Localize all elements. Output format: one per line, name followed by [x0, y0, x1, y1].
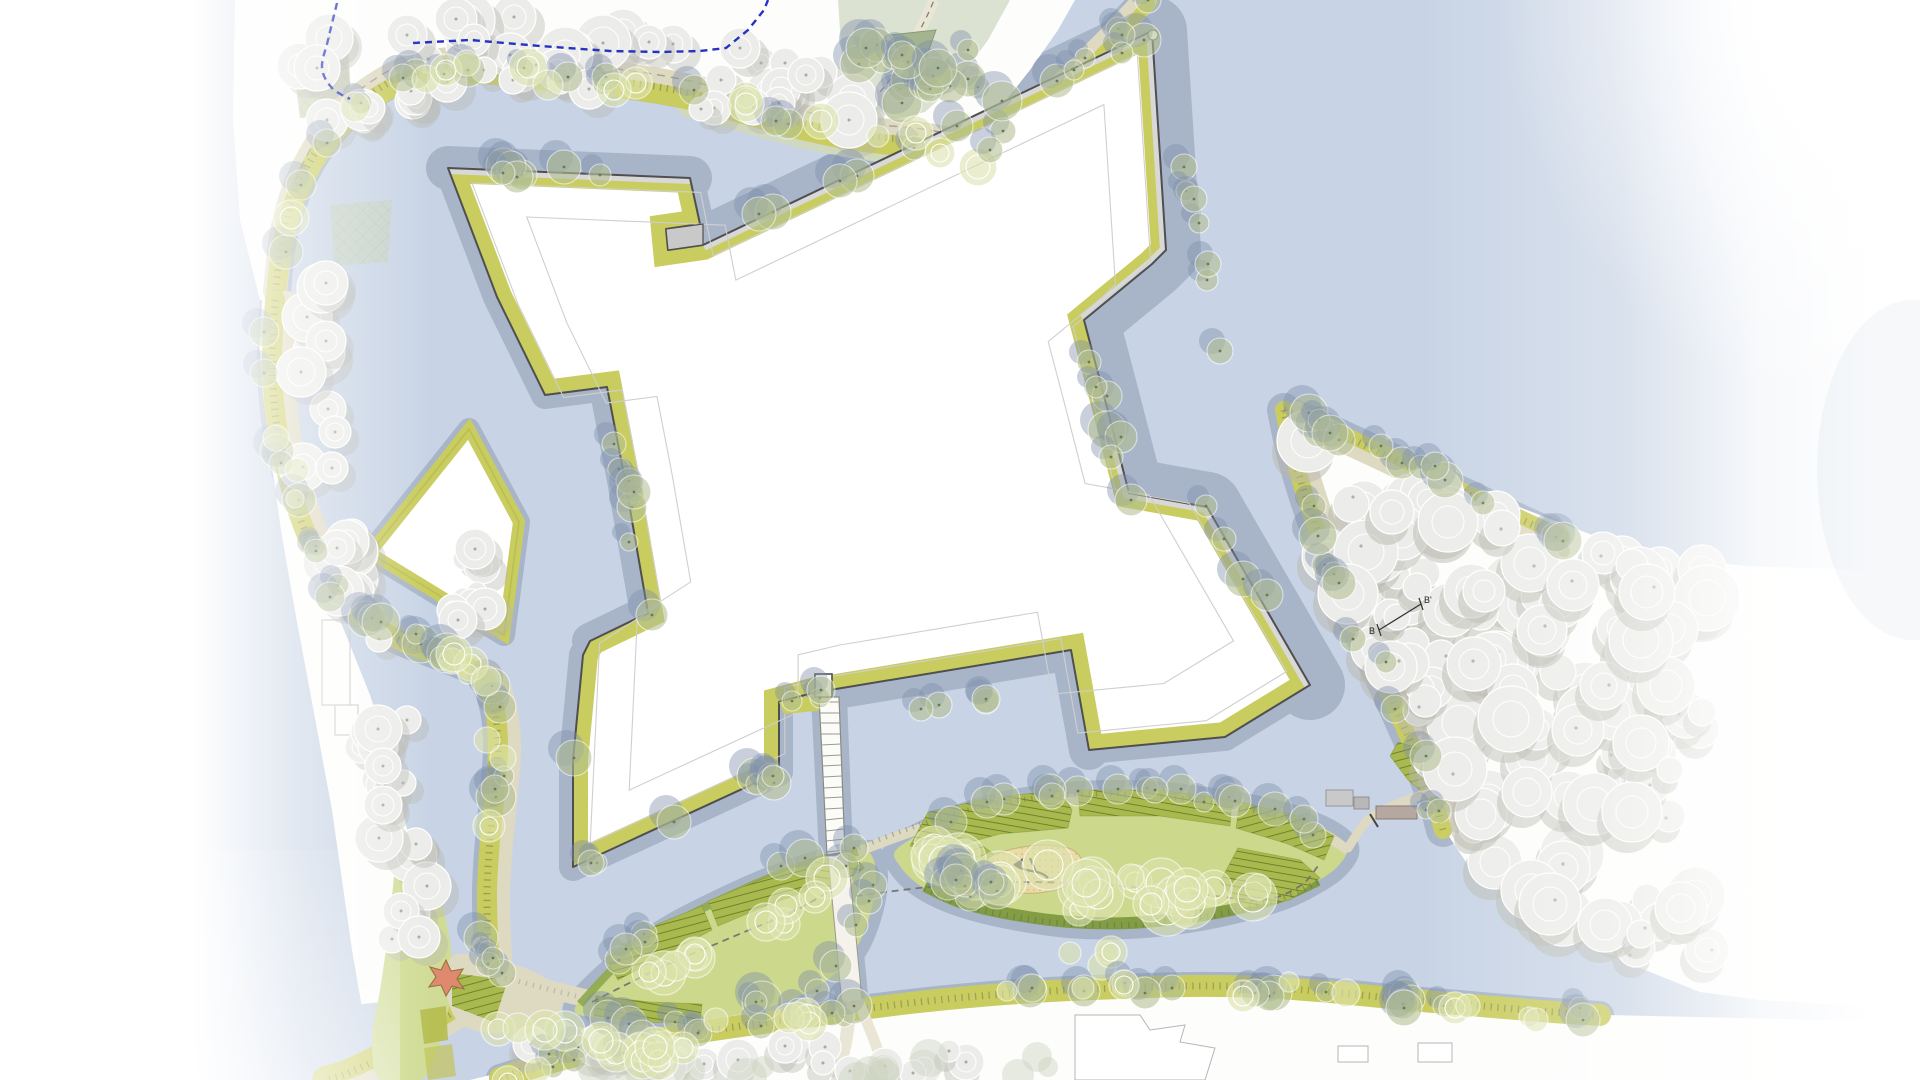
- svg-text:B: B: [1369, 626, 1375, 636]
- svg-text:B': B': [1424, 595, 1432, 605]
